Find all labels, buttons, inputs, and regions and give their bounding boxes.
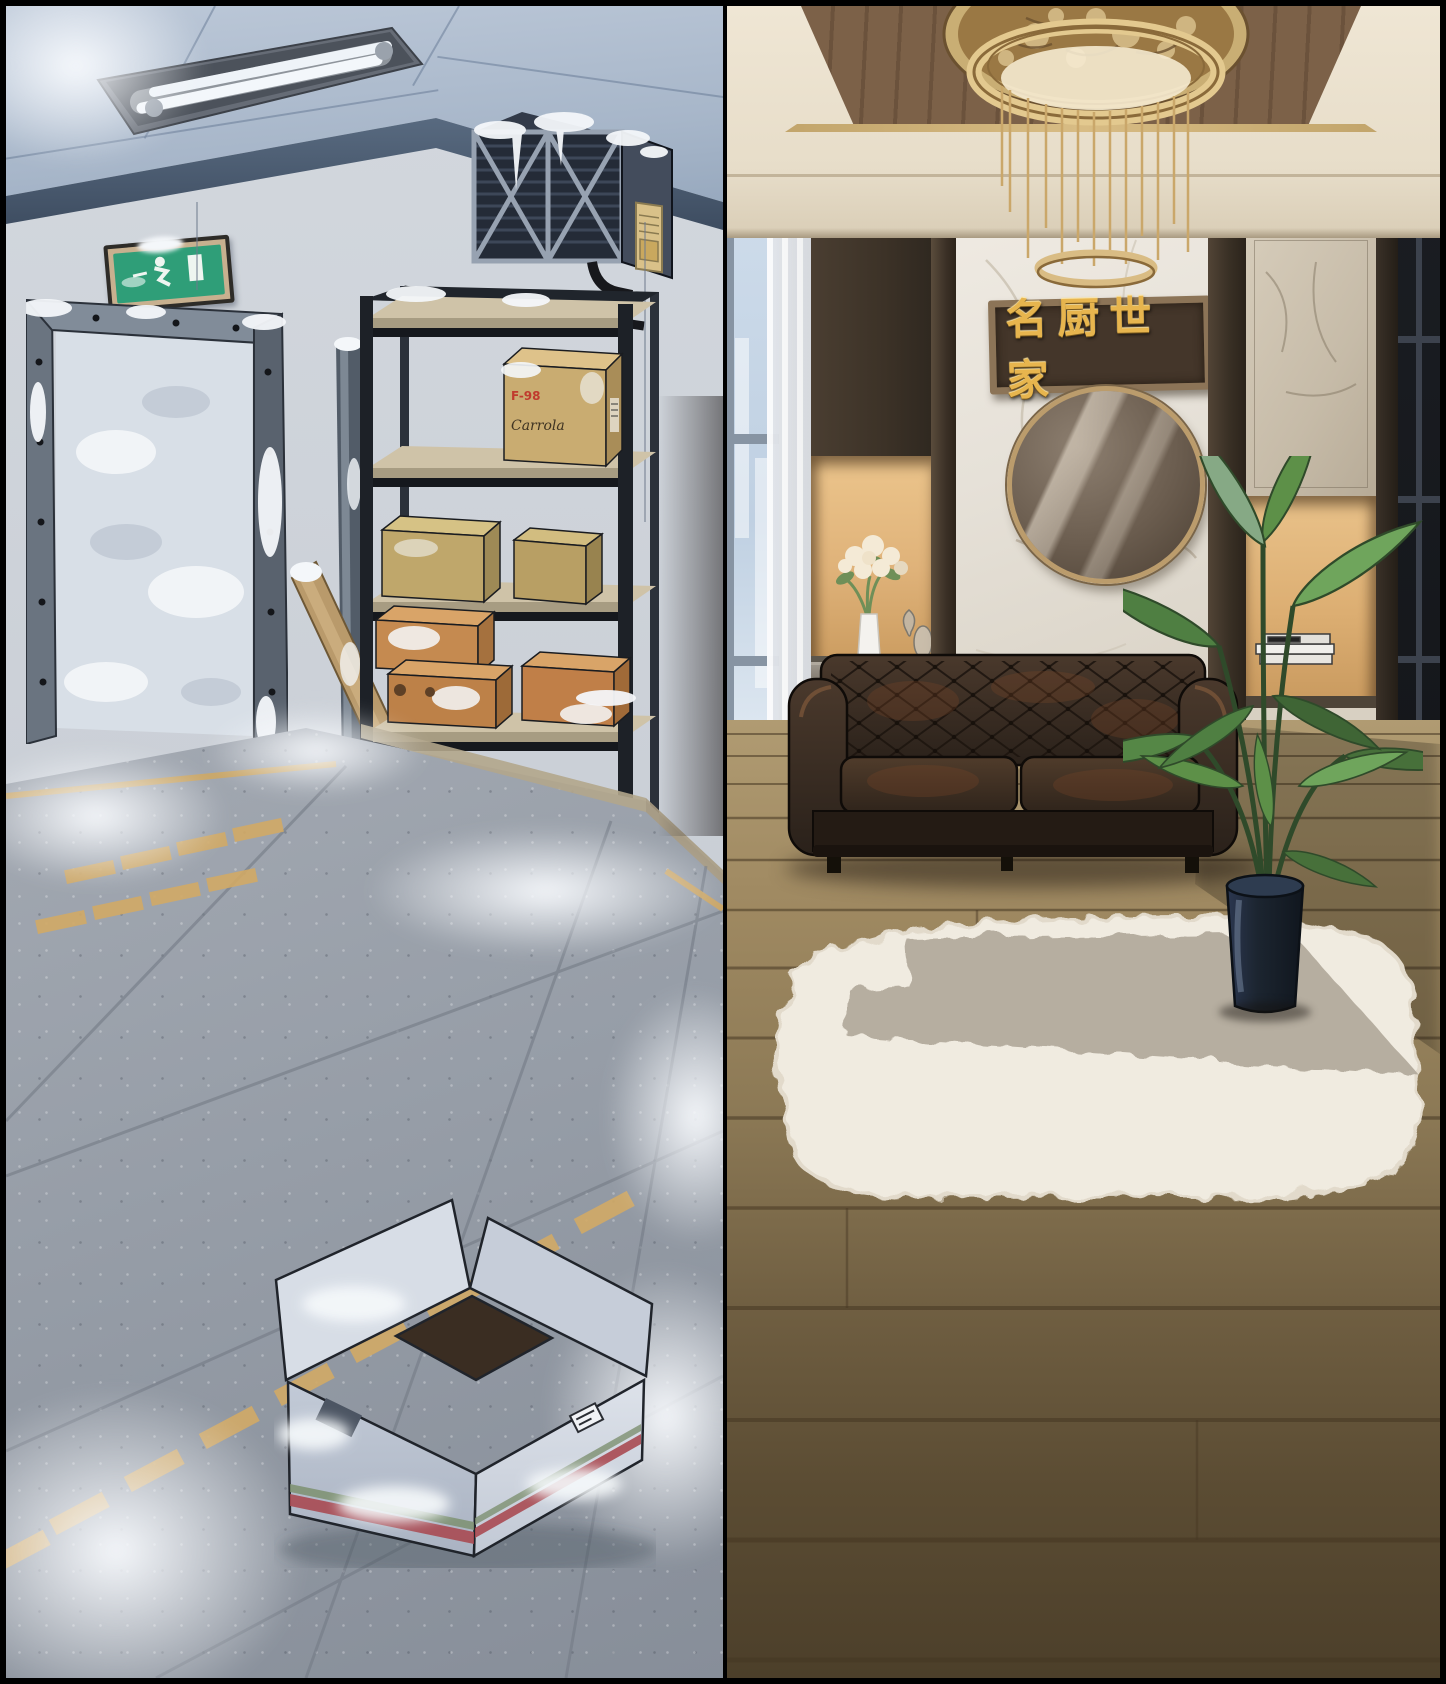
- window-grid: [1398, 336, 1440, 343]
- gold-ring-chandelier: [936, 6, 1256, 306]
- box-brand: Carrola: [511, 418, 565, 434]
- wall-seam: [196, 202, 198, 290]
- box-label: F-98: [511, 389, 541, 403]
- left-cabinet-upper-panel: [811, 232, 933, 458]
- potted-plant: [1123, 456, 1423, 1036]
- ceiling-seam: [437, 56, 723, 98]
- left-display-niche: [811, 456, 933, 664]
- split-scene-illustration: F-98 Carrola: [0, 0, 1446, 1684]
- window-frame: [727, 218, 734, 722]
- cold-storage-room-panel: F-98 Carrola: [6, 6, 723, 1678]
- box-f98: F-98 Carrola: [501, 348, 622, 466]
- corner-shadow: [658, 396, 723, 836]
- foreground-open-box: [274, 1184, 656, 1568]
- calligraphy-plaque: 名厨世家: [988, 295, 1212, 394]
- frost-patch: [206, 706, 426, 796]
- panel-divider: [723, 0, 727, 1684]
- city-silhouette: [755, 458, 767, 688]
- running-man-icon: [113, 245, 218, 296]
- khaki-boxes: [382, 516, 602, 604]
- frost-patch: [366, 826, 723, 956]
- metal-door-frame: [26, 292, 288, 744]
- glass-vase: [903, 610, 914, 636]
- flower-arrangement: [811, 456, 933, 664]
- lounge-room-panel: 名厨世家: [727, 6, 1440, 1678]
